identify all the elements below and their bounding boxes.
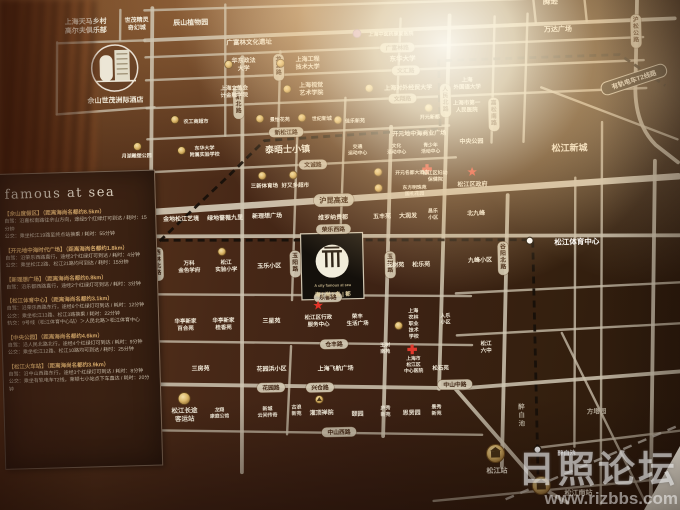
panel-heading: famous at sea <box>0 171 155 210</box>
gold-icon <box>289 171 297 179</box>
map-label: 万达广场 <box>543 24 572 34</box>
map-label: 方塔园 <box>587 406 607 415</box>
map-label: 松江新城 <box>551 142 587 154</box>
map-label: 松江区政府 <box>457 180 487 189</box>
map-label: 农工商超市 <box>182 118 208 126</box>
map-label: 荣丰生活广场 <box>346 312 369 328</box>
map-label: 月湖雕塑公园 <box>121 152 152 160</box>
gold-icon <box>256 115 264 123</box>
map-label: 上海外国语大学 <box>453 75 481 91</box>
map-label: 九峰小区 <box>467 256 492 265</box>
map-label: 泰晤士小镇 <box>264 143 310 155</box>
gold-icon <box>283 85 291 93</box>
map-label: 绿地蔷薇九里 <box>207 213 243 222</box>
map-label: 东方明珠苑国礼花园 <box>402 184 426 198</box>
star-icon <box>467 167 477 176</box>
map-label: 东华大学 <box>389 54 416 64</box>
map-label: 中央公园 <box>459 137 483 146</box>
map-label: 华亭新家桂香苑 <box>212 316 235 332</box>
panel-section: 【松江体育中心】（距离海尚名都约3.1km）自驾：沿荣乐西路东行，途经6个红绿灯… <box>1 293 158 329</box>
road-pill-label: 沪昆高速 <box>319 195 349 205</box>
station-dot-zuibaichi <box>534 446 541 453</box>
map-label: 龙翔康庭公馆 <box>210 406 230 420</box>
gold-icon <box>277 59 285 67</box>
gold-icon <box>133 142 141 150</box>
map-label: 玉乐小区 <box>257 261 281 270</box>
map-label: 新理想广场 <box>252 211 282 220</box>
gold-icon <box>365 84 373 92</box>
map-label: 思贤园 <box>402 408 420 416</box>
map-label: 交通运动中心 <box>348 143 368 157</box>
road-pill-label: 嘉松南路 <box>490 99 498 127</box>
map-label: 佘山世茂洲际酒店 <box>86 95 143 105</box>
map-label: 三新体育场 <box>251 181 279 190</box>
map-label: 上海农林职业技术学校 <box>407 307 420 340</box>
map-label: 辰山植物园 <box>173 17 208 27</box>
panel-section: 【中央公园】（距离海尚名都约4.6km）自驾：沿人民北路北行，途经4个红绿灯可到… <box>2 329 159 357</box>
map-label: 颐园 <box>352 410 364 418</box>
panel-section: 【佘山度假区】（距离海尚名都约8.5km）自驾：沿嘉松南路往佘山方向，途经5个红… <box>0 206 156 242</box>
map-label: 上海市第一人民医院 <box>453 98 481 114</box>
map-label: 佳乐新苑 <box>345 117 365 124</box>
map-label: 松江实验小学 <box>215 258 238 274</box>
road-pill-label: 沪松公路 <box>633 15 640 43</box>
map-label: 新城云间传奇 <box>257 405 277 419</box>
purple-icon <box>353 29 361 37</box>
map-label: 景怡花苑 <box>270 116 290 123</box>
map-label: 维罗纳贵都 <box>318 213 348 222</box>
map-label: 开元名都大酒店 <box>395 169 429 177</box>
gold-icon <box>374 168 382 176</box>
stationb-icon <box>532 476 550 494</box>
temple-icon <box>315 395 323 403</box>
map-label: 华亭新家百合苑 <box>174 317 197 333</box>
map-label: 世纪新城 <box>312 115 332 122</box>
gold-icon <box>298 114 306 122</box>
map-label: 腾逊 <box>542 0 559 6</box>
map-label: 万科金色学府 <box>177 259 201 275</box>
map-label: 人乐小区 <box>439 312 450 326</box>
map-label: 上海市松江区中心医院 <box>404 355 424 375</box>
project-site-emblem <box>301 232 364 299</box>
map-label: 古浪新苑 <box>291 403 301 417</box>
map-label: 东华大学附属实验学校 <box>189 144 220 158</box>
map-label: 五丰苑 <box>373 212 391 220</box>
gold-icon <box>425 104 433 112</box>
map-label: 松江区行政服务中心 <box>305 313 333 329</box>
gold-icon <box>334 116 342 124</box>
gold-icon <box>395 322 403 330</box>
map-label: 上海飞航广场 <box>317 364 353 373</box>
stationb-icon <box>486 444 504 462</box>
map-label: 灌顶禅院 <box>309 408 333 417</box>
road-pill-label: 人民北路 <box>441 85 449 113</box>
map-label: 醉白池 <box>557 449 575 457</box>
map-label: 松江站 <box>486 466 507 475</box>
map-label: 松江六中 <box>480 339 492 354</box>
map-label: 醉白池 <box>518 402 526 428</box>
station-dot-sports-center <box>526 237 533 244</box>
map-label: 松石苑 <box>432 363 449 371</box>
map-label: 北九峰 <box>467 209 486 217</box>
map-label: 上海工程技术大学 <box>295 55 319 71</box>
hotel-emblem <box>91 45 138 92</box>
map-label: 花园浜小区 <box>256 364 286 373</box>
map-label: 松乐苑 <box>412 260 430 268</box>
gold-icon <box>374 184 382 192</box>
gold-icon <box>171 116 179 124</box>
legend-panel: famous at sea 【佘山度假区】（距离海尚名都约8.5km）自驾：沿嘉… <box>0 170 163 470</box>
map-label: 昌乐小区 <box>428 207 438 221</box>
map-label: 上海对外经贸大学 <box>384 83 432 92</box>
map-label: 庐秀新苑 <box>380 404 391 418</box>
map-label: 上海天马乡村高尔夫俱乐部 <box>65 16 107 35</box>
map-label: 华东政法大学 <box>231 56 255 72</box>
map-label: 上海视觉艺术学院 <box>299 81 323 97</box>
map-label: 上海中医药康复医院 <box>368 30 413 38</box>
panel-sections: 【佘山度假区】（距离海尚名都约8.5km）自驾：沿嘉松南路往佘山方向，途经5个红… <box>0 206 160 394</box>
map-board-photo: 广富林路文汇路文翔路新松江路文诚路沪昆高速荣乐西路乐都路仓丰路花园路兴仓路中山中… <box>0 0 680 510</box>
map-label: 三星苑 <box>262 316 280 324</box>
map-label: 青少年活动中心 <box>421 141 441 155</box>
map-label: 开元新都 <box>420 113 440 120</box>
road-pill-label: 玉阳路 <box>292 251 298 273</box>
map-label: 玉树南苑 <box>380 341 390 355</box>
panel-section-line: 公交：乘坐有轨电车T2线，莱顿七小站点下车直达 / 耗时：20分钟 <box>9 375 153 394</box>
map-label: 大润发 <box>399 211 417 219</box>
map-label: A city famous at sea <box>314 283 352 288</box>
map-label: 三房苑 <box>191 364 209 372</box>
map-label: 金地松江艺境 <box>162 214 199 223</box>
gold-icon <box>218 248 226 256</box>
map-label: 松江体育中心 <box>554 236 600 247</box>
panel-section: 【新理想广场】（距离海尚名都约0.8km）自驾：沿乐都西路直行，途经2个红绿灯可… <box>1 271 157 292</box>
panel-section: 【松江火车站】（距离海尚名都约3.9km）自驾：沿中山西路东行，途经3个红绿灯可… <box>3 358 160 394</box>
road-pill-label: 谷阳北路 <box>500 242 507 270</box>
map-label: 松江长途客运站 <box>171 405 198 423</box>
panel-section: 【开元地中海时代广场】（距离海尚名都约1.8km）自驾：沿荣乐西路直行，途经3个… <box>0 242 157 270</box>
map-label: 景秀新苑 <box>431 403 442 417</box>
cross-icon <box>407 344 417 354</box>
map-label: 上海立信会计金融学院 <box>220 83 248 99</box>
gold-icon <box>178 146 186 154</box>
gold-icon <box>258 172 266 180</box>
gold-icon <box>178 392 190 404</box>
map-label: 世茂精灵奇幻城 <box>125 16 150 32</box>
